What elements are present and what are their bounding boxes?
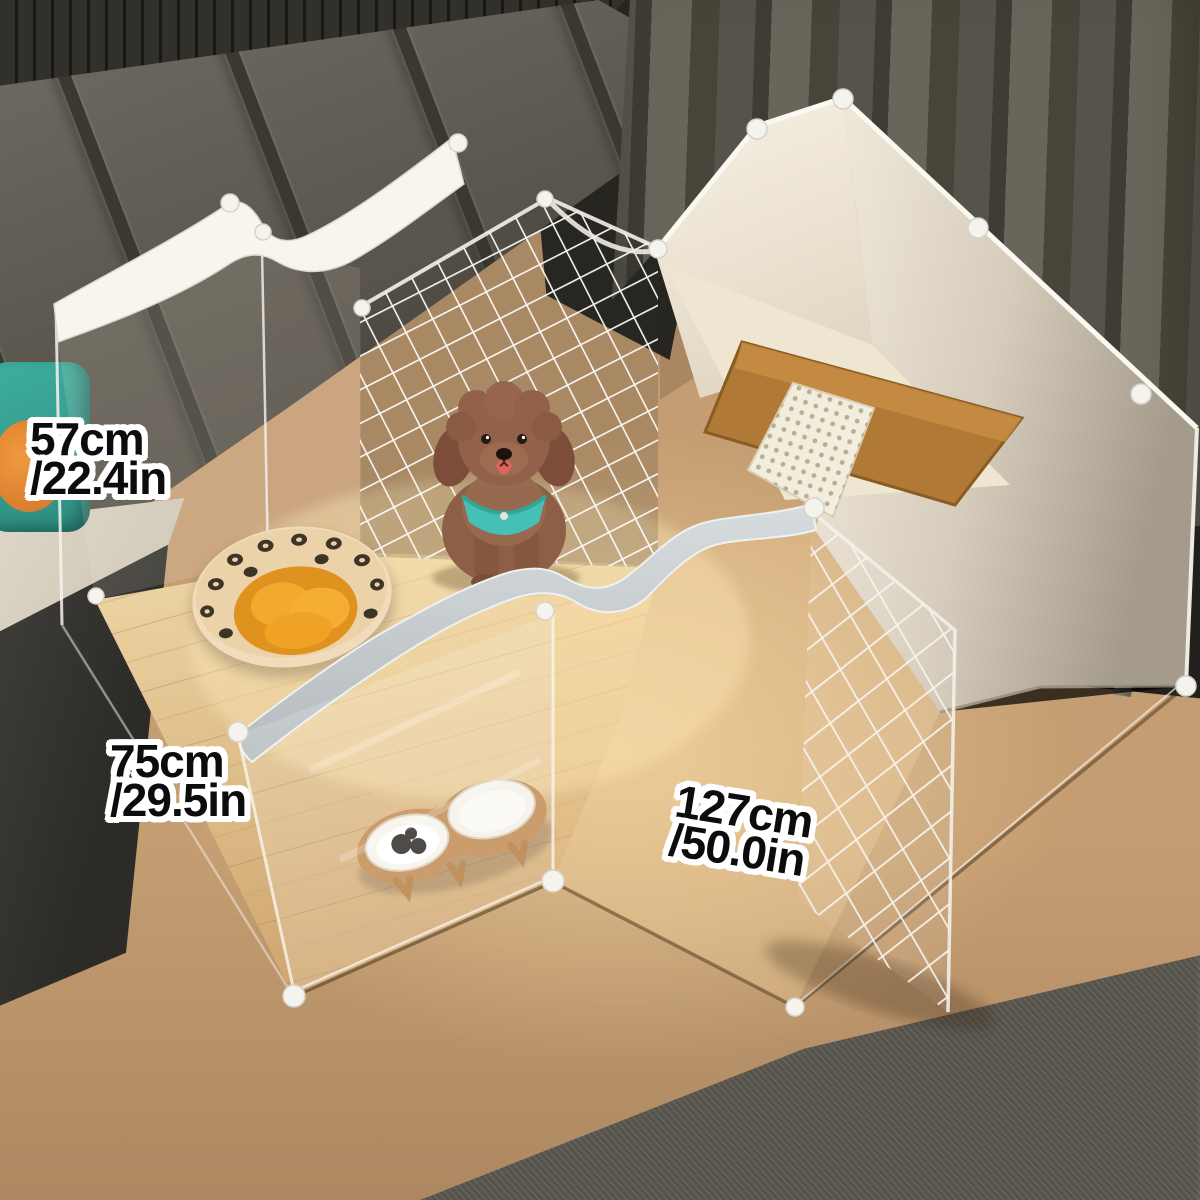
dimension-label-height: 57cm /22.4in — [30, 420, 166, 497]
dimension-height-in: /22.4in — [30, 459, 166, 498]
playpen-scene — [0, 0, 1200, 1200]
dimension-depth-in: /29.5in — [110, 781, 246, 820]
dimension-label-depth: 75cm /29.5in — [110, 742, 246, 819]
product-photo-stage: 57cm /22.4in 75cm /29.5in 127cm /50.0in — [0, 0, 1200, 1200]
dimension-label-width: 127cm /50.0in — [667, 782, 816, 880]
